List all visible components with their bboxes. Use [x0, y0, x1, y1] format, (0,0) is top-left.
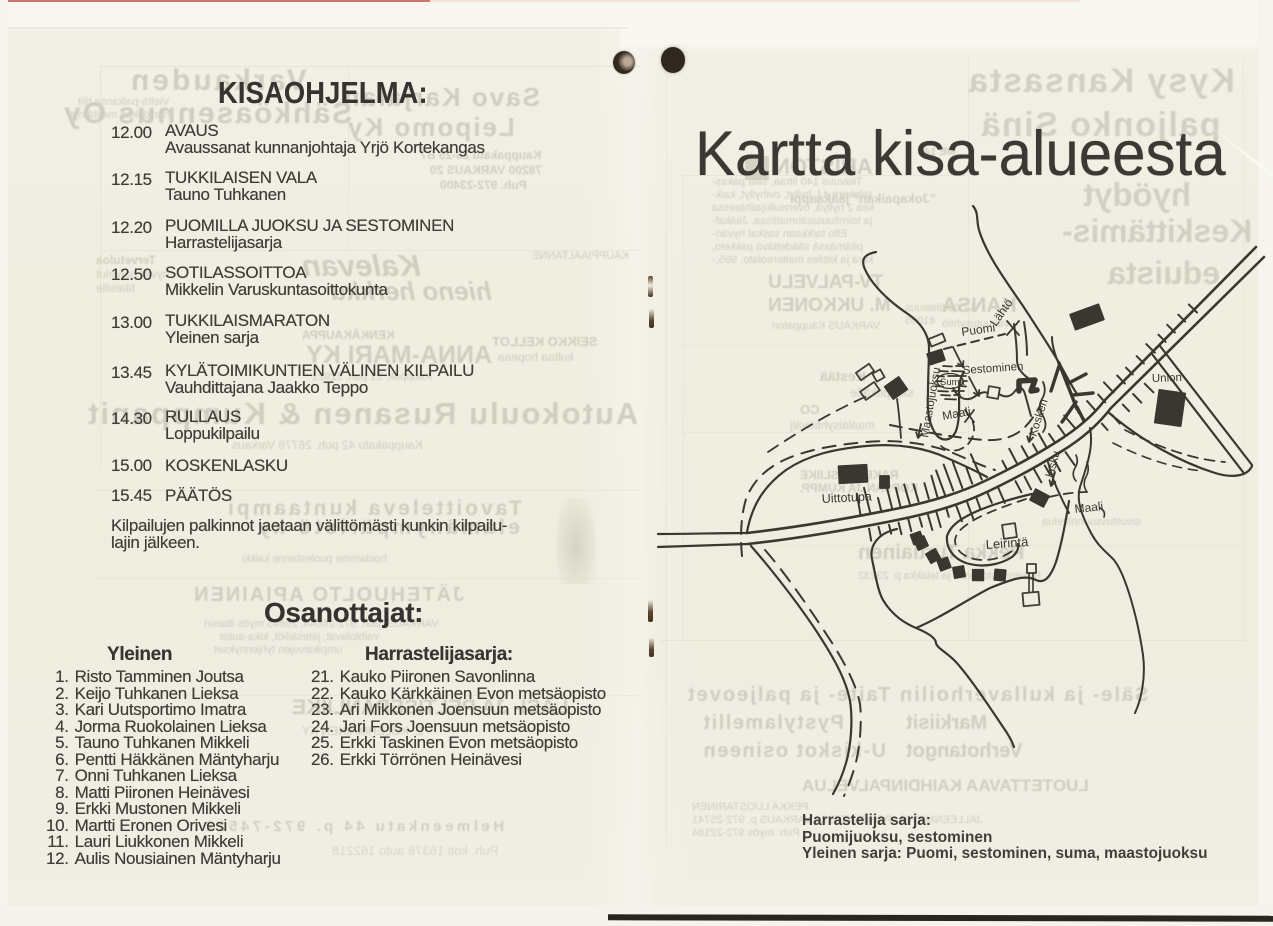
svg-text:Lähtö: Lähtö	[987, 296, 1016, 329]
svg-text:Uittotupa: Uittotupa	[821, 489, 872, 506]
svg-text:Maastojuoksu: Maastojuoksu	[919, 367, 943, 439]
svg-text:lasku: lasku	[1044, 450, 1063, 479]
svg-text:Suma: Suma	[940, 377, 966, 388]
svg-text:Maali: Maali	[1074, 499, 1104, 516]
svg-text:Leirintä: Leirintä	[985, 534, 1029, 552]
svg-text:Sestominen: Sestominen	[962, 361, 1023, 377]
svg-text:Kosken: Kosken	[1027, 398, 1050, 438]
svg-text:Union: Union	[1152, 372, 1182, 385]
